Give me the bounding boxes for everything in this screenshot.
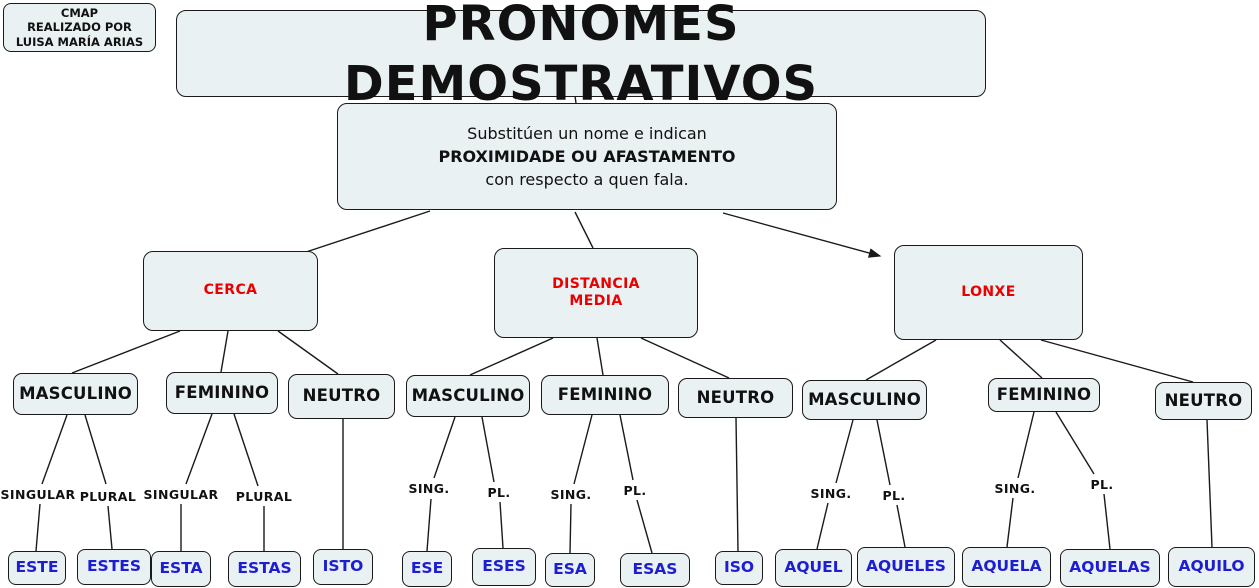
gender-node-lonxe-masculino[interactable]: MASCULINO <box>802 380 927 420</box>
pronoun-node-estas[interactable]: ESTAS <box>228 551 301 587</box>
connector-line <box>42 415 67 484</box>
connector-line <box>641 338 729 378</box>
credit-node[interactable]: CMAP REALIZADO POR LUISA MARÍA ARIAS <box>3 3 156 52</box>
pronoun-node-aqueles[interactable]: AQUELES <box>857 547 955 587</box>
pronoun-node-eses[interactable]: ESES <box>472 548 536 586</box>
connector-line <box>36 504 40 551</box>
connector-line <box>500 502 503 548</box>
pronoun-node-aquilo[interactable]: AQUILO <box>1168 547 1255 587</box>
connector-line <box>1207 420 1212 547</box>
gender-node-cerca-masculino[interactable]: MASCULINO <box>13 373 138 415</box>
pronoun-node-estes[interactable]: ESTES <box>77 549 151 585</box>
number-label-singular[interactable]: SINGULAR <box>1 487 76 502</box>
connector-line <box>866 340 936 380</box>
pronoun-node-esta[interactable]: ESTA <box>151 551 211 587</box>
pronoun-node-aquela[interactable]: AQUELA <box>962 547 1051 587</box>
arrow-connector-line <box>723 213 880 256</box>
concept-map-canvas: CMAP REALIZADO POR LUISA MARÍA ARIAS PRO… <box>0 0 1259 588</box>
gender-node-media-masculino[interactable]: MASCULINO <box>406 375 530 417</box>
connector-line <box>597 338 603 375</box>
connector-line <box>470 338 553 375</box>
connector-line <box>186 414 212 484</box>
connector-line <box>817 503 828 549</box>
connector-line <box>427 499 431 551</box>
connector-line <box>1104 494 1110 549</box>
connector-line <box>620 415 633 480</box>
definition-node[interactable]: Substitúen un nome e indican PROXIMIDADE… <box>337 103 837 210</box>
number-label-singular[interactable]: SINGULAR <box>144 487 219 502</box>
connector-line <box>108 506 112 549</box>
pronoun-node-esa[interactable]: ESA <box>545 553 595 587</box>
connector-line <box>85 415 106 484</box>
number-label-sing[interactable]: SING. <box>994 481 1035 496</box>
connector-line <box>278 331 338 374</box>
number-label-pl[interactable]: PL. <box>623 483 646 498</box>
connector-line <box>221 331 228 372</box>
gender-node-cerca-neutro[interactable]: NEUTRO <box>288 374 395 419</box>
connector-line <box>1000 340 1042 378</box>
connector-line <box>574 415 592 484</box>
connector-line <box>736 418 738 551</box>
connector-line <box>434 417 455 478</box>
number-label-sing[interactable]: SING. <box>408 481 449 496</box>
pronoun-node-esas[interactable]: ESAS <box>620 553 690 587</box>
gender-node-lonxe-feminino[interactable]: FEMININO <box>988 378 1100 412</box>
connector-line <box>1056 412 1094 474</box>
connector-line <box>637 500 652 553</box>
connector-line <box>1007 498 1013 547</box>
pronoun-node-isto[interactable]: ISTO <box>313 549 373 585</box>
connector-line <box>1041 340 1193 382</box>
number-label-plural[interactable]: PLURAL <box>80 489 137 504</box>
connector-line <box>897 505 905 547</box>
pronoun-node-iso[interactable]: ISO <box>715 551 763 585</box>
connector-line <box>877 420 890 485</box>
definition-line1: Substitúen un nome e indican <box>467 122 707 145</box>
number-label-pl[interactable]: PL. <box>487 485 510 500</box>
number-label-plural[interactable]: PLURAL <box>236 489 293 504</box>
gender-node-lonxe-neutro[interactable]: NEUTRO <box>1155 382 1252 420</box>
pronoun-node-ese[interactable]: ESE <box>402 551 452 587</box>
category-node-lonxe[interactable]: LONXE <box>894 245 1083 340</box>
connector-line <box>482 417 494 482</box>
pronoun-node-aquel[interactable]: AQUEL <box>775 549 852 587</box>
number-label-sing[interactable]: SING. <box>810 486 851 501</box>
connector-line <box>575 212 593 248</box>
category-node-distancia-media[interactable]: DISTANCIA MEDIA <box>494 248 698 338</box>
connector-line <box>72 331 180 373</box>
pronoun-node-este[interactable]: ESTE <box>8 551 66 585</box>
connector-line <box>570 504 571 553</box>
number-label-sing[interactable]: SING. <box>550 487 591 502</box>
number-label-pl[interactable]: PL. <box>882 488 905 503</box>
number-label-pl[interactable]: PL. <box>1090 477 1113 492</box>
connector-line <box>303 211 430 253</box>
gender-node-cerca-feminino[interactable]: FEMININO <box>166 372 278 414</box>
category-node-cerca[interactable]: CERCA <box>143 251 318 331</box>
gender-node-media-feminino[interactable]: FEMININO <box>541 375 669 415</box>
title-node[interactable]: PRONOMES DEMOSTRATIVOS <box>176 10 986 97</box>
connector-line <box>836 420 853 483</box>
gender-node-media-neutro[interactable]: NEUTRO <box>678 378 793 418</box>
connector-line <box>1018 412 1034 478</box>
definition-line2: PROXIMIDADE OU AFASTAMENTO <box>438 145 735 168</box>
pronoun-node-aquelas[interactable]: AQUELAS <box>1060 549 1160 587</box>
connector-line <box>234 414 258 486</box>
definition-line3: con respecto a quen fala. <box>485 168 688 191</box>
